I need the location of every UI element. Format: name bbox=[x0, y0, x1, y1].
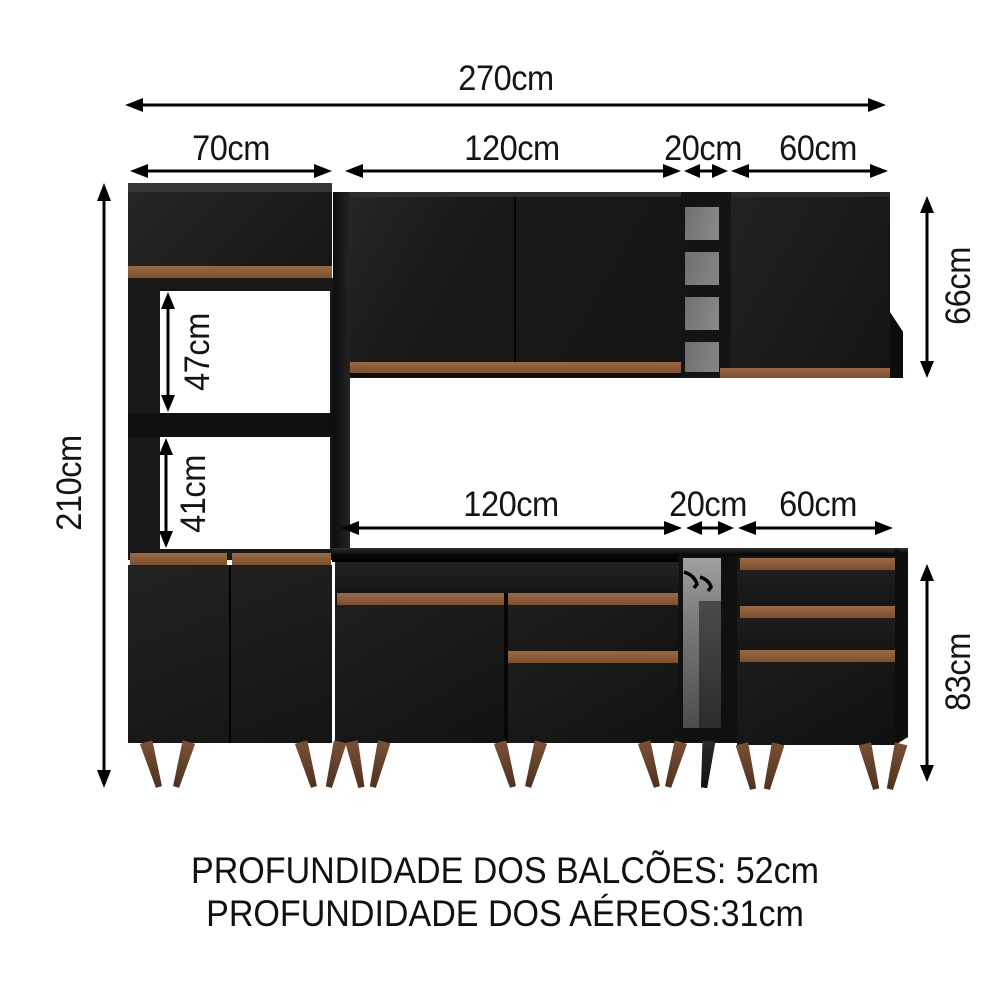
dim-total-width-arrow bbox=[125, 98, 886, 112]
dim-base-height-arrow bbox=[920, 564, 934, 782]
dim-lower-20-arrow bbox=[686, 521, 734, 535]
kitchen-dimension-diagram: 270cm 70cm 120cm 20cm 60cm 120cm 20cm 60… bbox=[0, 0, 1000, 1000]
dim-upper-20-arrow bbox=[684, 164, 728, 178]
dim-upper-60-arrow bbox=[731, 164, 888, 178]
dim-lower-120-arrow bbox=[341, 521, 682, 535]
dim-upper-height-arrow bbox=[920, 196, 934, 378]
dim-niche-top-arrow bbox=[161, 292, 175, 412]
dim-niche-bottom-arrow bbox=[159, 438, 173, 548]
dimension-arrows bbox=[0, 0, 1000, 1000]
dim-total-height-arrow bbox=[97, 183, 111, 788]
dim-lower-60-arrow bbox=[738, 521, 893, 535]
dim-tower-width-arrow bbox=[130, 164, 332, 178]
dim-upper-120-arrow bbox=[345, 164, 681, 178]
hook-icons bbox=[684, 572, 711, 591]
